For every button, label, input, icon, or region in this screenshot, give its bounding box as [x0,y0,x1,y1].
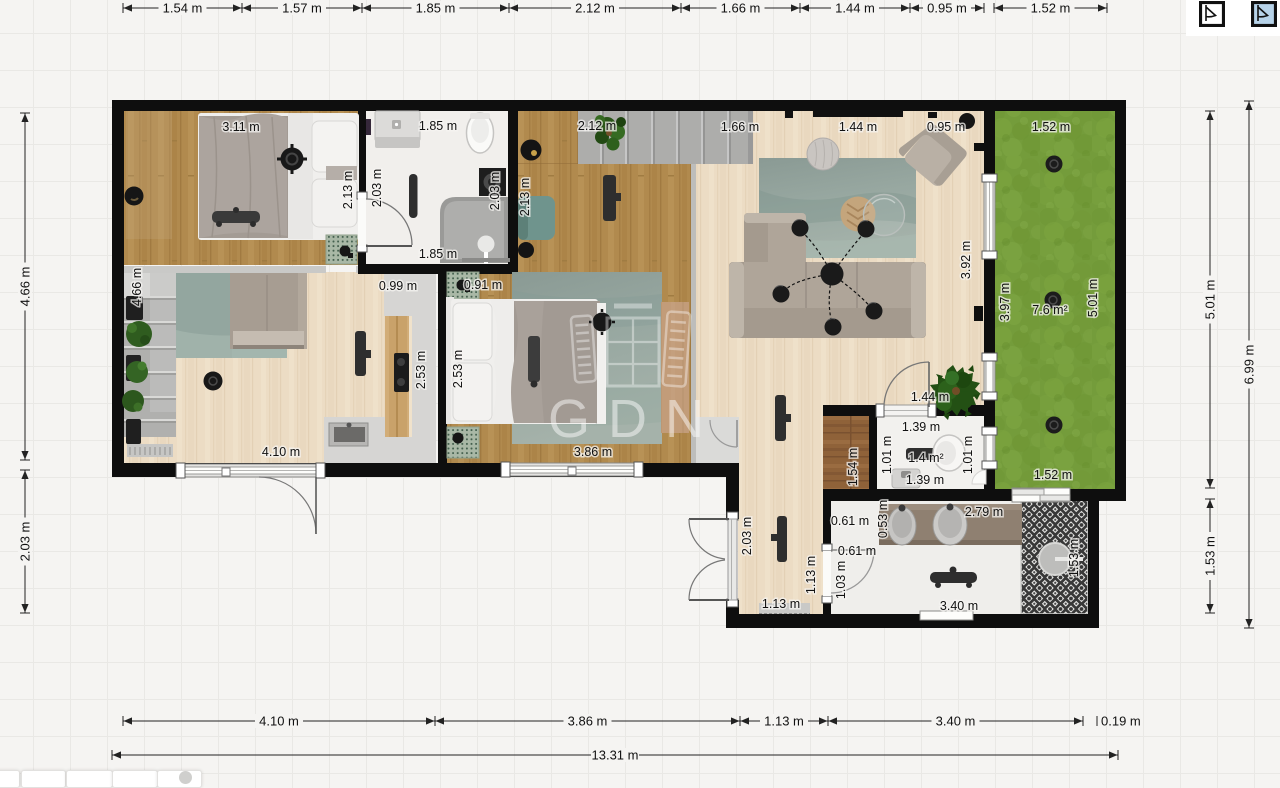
svg-text:0.61 m: 0.61 m [838,544,876,558]
svg-text:1.44 m: 1.44 m [835,1,875,16]
svg-text:2.12 m: 2.12 m [575,1,615,16]
svg-text:1.85 m: 1.85 m [416,1,456,16]
svg-text:1.13 m: 1.13 m [804,556,818,594]
svg-text:1.66 m: 1.66 m [721,120,759,134]
svg-text:2.13 m: 2.13 m [518,178,532,216]
svg-text:5.01 m: 5.01 m [1086,279,1100,317]
svg-text:3.97 m: 3.97 m [998,283,1012,321]
svg-text:3.92 m: 3.92 m [959,241,973,279]
svg-text:2.03 m: 2.03 m [740,517,754,555]
svg-text:0.99 m: 0.99 m [379,279,417,293]
svg-text:2.13 m: 2.13 m [341,171,355,209]
svg-text:3.40 m: 3.40 m [940,599,978,613]
svg-text:GDN: GDN [548,389,722,449]
svg-text:2.12 m: 2.12 m [578,119,616,133]
svg-text:1.52 m: 1.52 m [1031,1,1071,16]
svg-text:13.31 m: 13.31 m [592,748,639,763]
svg-text:1.4 m²: 1.4 m² [908,451,943,465]
svg-text:4.10 m: 4.10 m [259,714,299,729]
svg-text:3.86 m: 3.86 m [568,714,608,729]
svg-text:1.85 m: 1.85 m [419,119,457,133]
svg-text:1.13 m: 1.13 m [764,714,804,729]
svg-text:1.01 m: 1.01 m [880,436,894,474]
svg-text:2.03 m: 2.03 m [488,172,502,210]
svg-text:3.86 m: 3.86 m [574,445,612,459]
svg-text:2.03 m: 2.03 m [18,522,33,562]
svg-text:7.6 m²: 7.6 m² [1032,303,1067,317]
svg-text:1.53 m: 1.53 m [1067,539,1081,577]
svg-text:2.53 m: 2.53 m [414,351,428,389]
svg-text:1.54 m: 1.54 m [846,448,860,486]
svg-text:1.03 m: 1.03 m [834,561,848,599]
svg-text:1.01 m: 1.01 m [961,436,975,474]
svg-text:4.66 m: 4.66 m [130,268,144,306]
svg-text:0.53 m: 0.53 m [876,500,890,538]
svg-text:1.39 m: 1.39 m [906,473,944,487]
svg-text:1.52 m: 1.52 m [1032,120,1070,134]
svg-text:3.11 m: 3.11 m [222,120,259,134]
svg-text:5.01 m: 5.01 m [1203,280,1218,320]
svg-text:1.57 m: 1.57 m [282,1,322,16]
svg-text:0.61 m: 0.61 m [831,514,869,528]
svg-text:1.66 m: 1.66 m [721,1,761,16]
svg-text:3.40 m: 3.40 m [936,714,976,729]
svg-text:1.39 m: 1.39 m [902,420,940,434]
svg-text:1.53 m: 1.53 m [1203,536,1218,576]
svg-text:1.54 m: 1.54 m [163,1,203,16]
svg-text:0.91 m: 0.91 m [464,278,502,292]
svg-text:1.44 m: 1.44 m [839,120,877,134]
svg-text:6.99 m: 6.99 m [1242,345,1257,385]
svg-text:4.66 m: 4.66 m [18,267,33,307]
svg-text:0.19 m: 0.19 m [1101,714,1141,729]
svg-text:1.85 m: 1.85 m [419,247,457,261]
svg-text:1.44 m: 1.44 m [911,390,949,404]
svg-text:1.13 m: 1.13 m [762,597,800,611]
svg-text:2.79 m: 2.79 m [965,505,1003,519]
svg-text:2.53 m: 2.53 m [451,350,465,388]
svg-text:0.95 m: 0.95 m [927,120,965,134]
svg-text:2.03 m: 2.03 m [370,169,384,207]
svg-text:1.52 m: 1.52 m [1034,468,1072,482]
svg-text:4.10 m: 4.10 m [262,445,300,459]
svg-text:0.95 m: 0.95 m [927,1,967,16]
